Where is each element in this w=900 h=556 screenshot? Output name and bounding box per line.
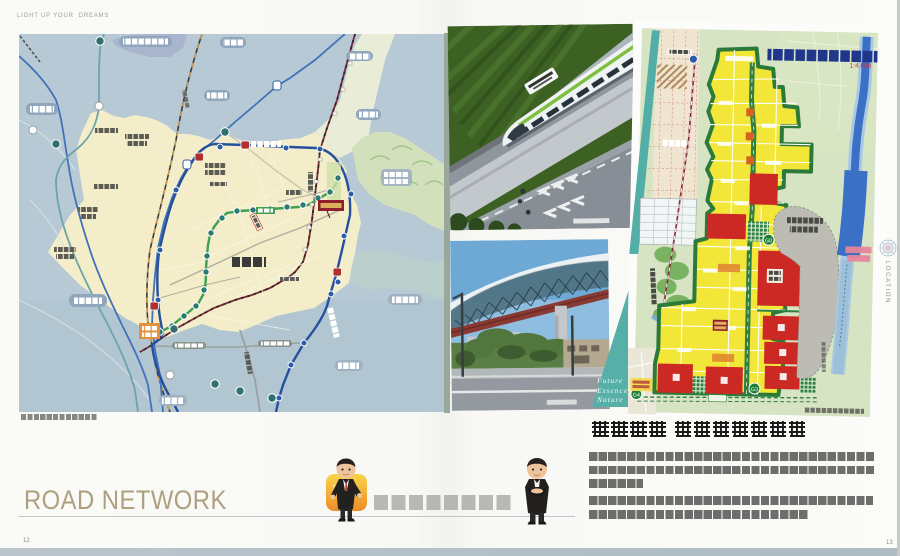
svg-text:G3: G3 <box>751 387 758 393</box>
svg-text:G4: G4 <box>633 392 640 398</box>
svg-text:G0: G0 <box>765 238 772 244</box>
svg-text:1:4,600: 1:4,600 <box>849 62 871 69</box>
